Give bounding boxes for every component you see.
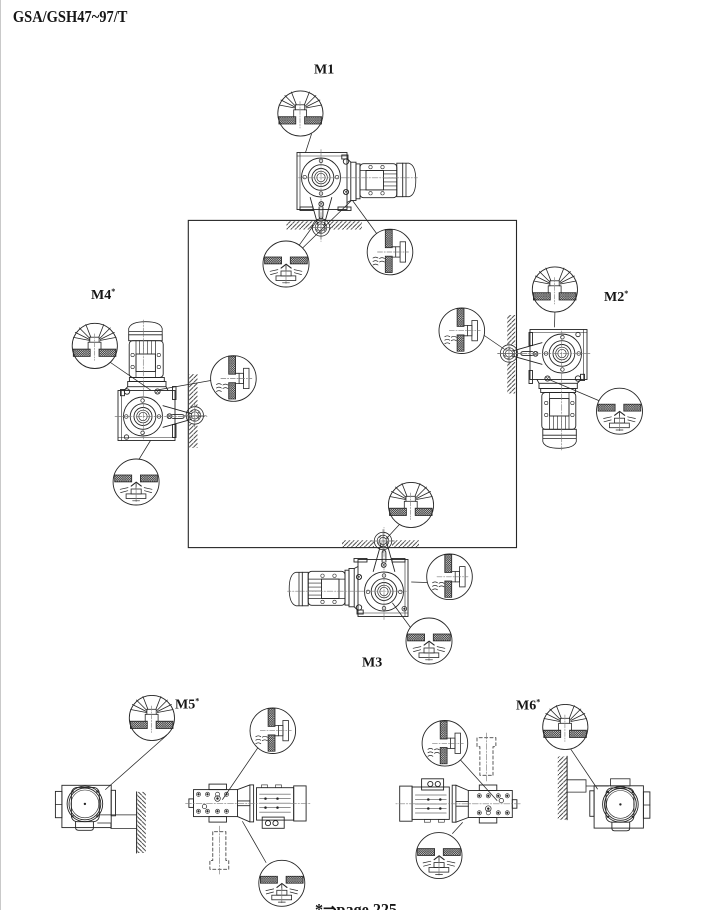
svg-text:M6*: M6* [516,698,540,714]
svg-text:GSA/GSH47~97/T: GSA/GSH47~97/T [13,7,128,26]
svg-text:*⇒page 225: *⇒page 225 [315,900,397,910]
svg-text:M4*: M4* [91,287,115,303]
svg-text:M5*: M5* [175,697,199,713]
svg-text:M1: M1 [314,63,334,78]
svg-text:M3: M3 [362,656,382,671]
svg-text:M2*: M2* [604,289,628,305]
